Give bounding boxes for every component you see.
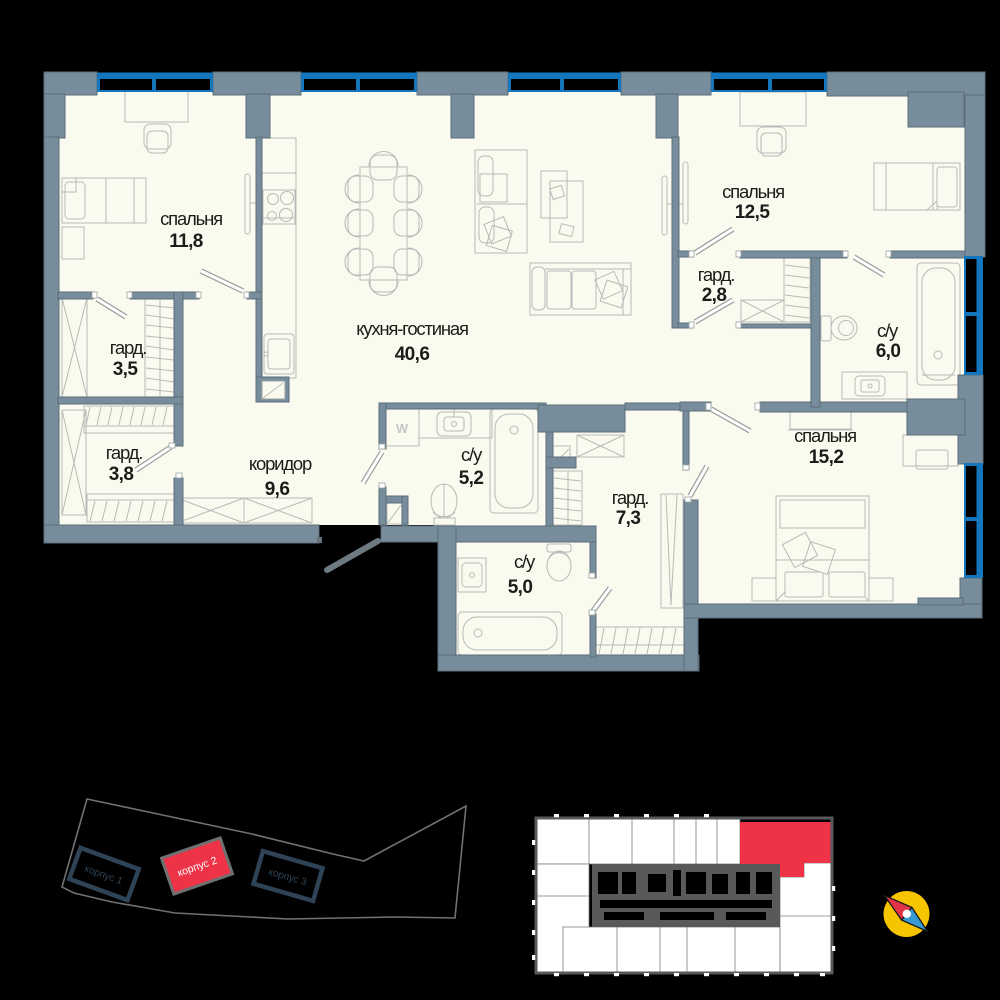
- svg-text:40,6: 40,6: [395, 344, 430, 365]
- svg-text:7,3: 7,3: [616, 508, 641, 529]
- svg-text:11,8: 11,8: [169, 231, 203, 252]
- svg-text:гард.: гард.: [110, 337, 146, 358]
- svg-text:3,5: 3,5: [113, 359, 139, 380]
- svg-text:15,2: 15,2: [809, 447, 844, 468]
- svg-text:6,0: 6,0: [876, 341, 901, 362]
- svg-text:3,8: 3,8: [109, 464, 134, 485]
- svg-text:спальня: спальня: [794, 425, 856, 446]
- svg-text:спальня: спальня: [722, 181, 784, 202]
- svg-text:коридор: коридор: [249, 453, 312, 474]
- svg-text:спальня: спальня: [160, 208, 222, 229]
- svg-text:2,8: 2,8: [702, 285, 727, 306]
- svg-text:5,0: 5,0: [508, 577, 533, 598]
- svg-text:12,5: 12,5: [735, 202, 771, 223]
- svg-text:гард.: гард.: [106, 442, 142, 463]
- svg-text:гард.: гард.: [612, 487, 648, 508]
- svg-text:с/у: с/у: [877, 320, 899, 341]
- svg-text:кухня-гостиная: кухня-гостиная: [356, 318, 468, 339]
- svg-text:5,2: 5,2: [459, 468, 484, 489]
- svg-text:9,6: 9,6: [265, 479, 290, 500]
- svg-text:с/у: с/у: [514, 551, 536, 572]
- svg-text:W: W: [396, 422, 408, 436]
- svg-text:гард.: гард.: [698, 264, 734, 285]
- svg-text:с/у: с/у: [461, 444, 483, 465]
